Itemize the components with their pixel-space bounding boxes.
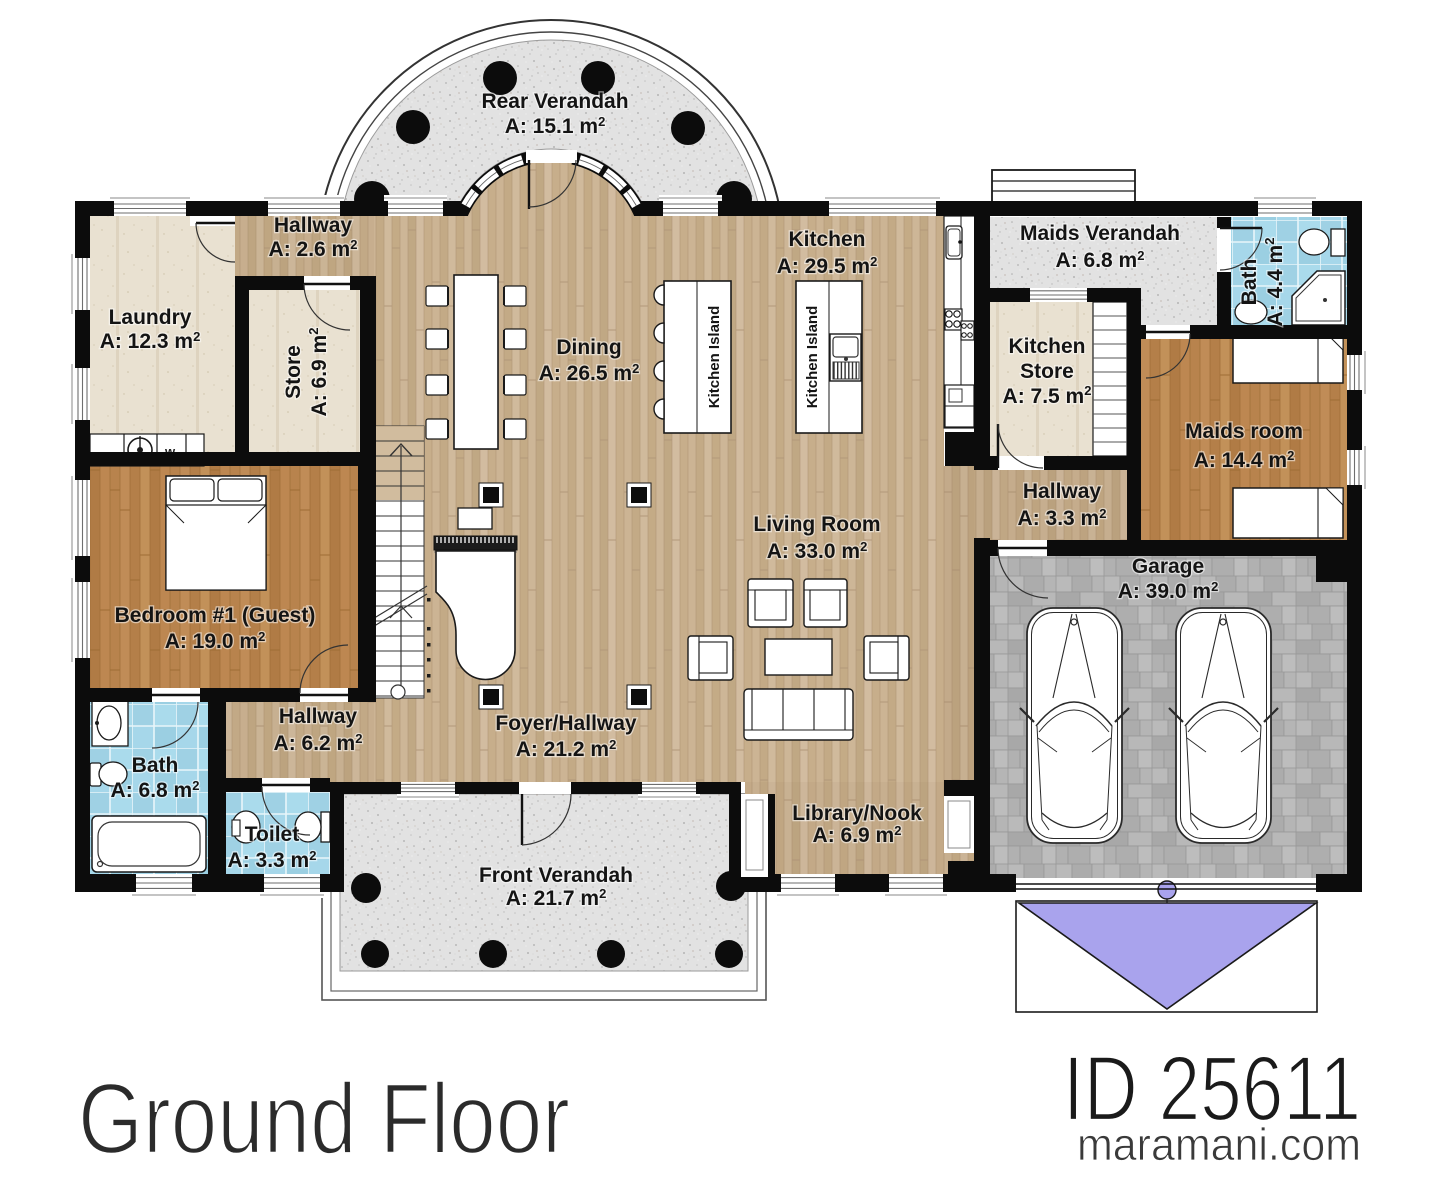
svg-text:Maids room: Maids room: [1185, 420, 1303, 443]
svg-text:A: 29.5 m2: A: 29.5 m2: [777, 254, 878, 278]
svg-text:Toilet: Toilet: [245, 823, 299, 846]
svg-text:A: 21.7 m2: A: 21.7 m2: [506, 886, 607, 910]
svg-text:A: 21.2 m2: A: 21.2 m2: [516, 737, 617, 761]
svg-text:Kitchen Island: Kitchen Island: [706, 306, 723, 409]
svg-text:A: 12.3 m2: A: 12.3 m2: [100, 329, 201, 353]
svg-text:Hallway: Hallway: [279, 705, 358, 728]
svg-text:Hallway: Hallway: [274, 214, 353, 237]
svg-text:A: 7.5 m2: A: 7.5 m2: [1003, 383, 1092, 408]
svg-text:Rear Verandah: Rear Verandah: [481, 90, 628, 113]
svg-text:A: 3.3 m2: A: 3.3 m2: [1018, 506, 1107, 530]
svg-text:maramani.com: maramani.com: [1077, 1119, 1361, 1170]
svg-text:Foyer/Hallway: Foyer/Hallway: [495, 712, 637, 735]
svg-text:Store: Store: [282, 345, 305, 399]
svg-text:A: 2.6 m2: A: 2.6 m2: [269, 237, 358, 261]
svg-text:Garage: Garage: [1132, 555, 1204, 578]
svg-text:A: 6.8 m2: A: 6.8 m2: [111, 778, 200, 802]
svg-text:A: 15.1 m2: A: 15.1 m2: [505, 114, 606, 138]
svg-text:A: 26.5 m2: A: 26.5 m2: [539, 361, 640, 385]
svg-text:Living Room: Living Room: [753, 513, 880, 536]
svg-text:Library/Nook: Library/Nook: [792, 802, 922, 825]
svg-text:Hallway: Hallway: [1023, 480, 1102, 503]
svg-text:Maids Verandah: Maids Verandah: [1020, 222, 1180, 245]
svg-text:Store: Store: [1020, 360, 1074, 383]
svg-text:A: 3.3 m2: A: 3.3 m2: [228, 848, 317, 872]
svg-text:Bedroom #1 (Guest): Bedroom #1 (Guest): [115, 604, 316, 627]
svg-text:A: 6.9 m2: A: 6.9 m2: [306, 328, 331, 417]
svg-text:A: 6.2 m2: A: 6.2 m2: [274, 731, 363, 755]
svg-text:Ground Floor: Ground Floor: [78, 1063, 570, 1175]
svg-text:A: 14.4 m2: A: 14.4 m2: [1194, 448, 1295, 472]
svg-text:Dining: Dining: [556, 336, 621, 359]
svg-text:A: 6.8 m2: A: 6.8 m2: [1056, 248, 1145, 272]
svg-text:A: 6.9 m2: A: 6.9 m2: [813, 823, 902, 847]
svg-text:Kitchen: Kitchen: [788, 228, 865, 251]
svg-text:Bath: Bath: [132, 754, 179, 777]
svg-text:A: 33.0 m2: A: 33.0 m2: [767, 539, 868, 563]
svg-text:Front Verandah: Front Verandah: [479, 864, 633, 887]
svg-text:A: 4.4 m2: A: 4.4 m2: [1262, 238, 1287, 327]
svg-text:A: 19.0 m2: A: 19.0 m2: [165, 629, 266, 653]
svg-text:Kitchen Island: Kitchen Island: [804, 306, 821, 409]
svg-text:Bath: Bath: [1238, 259, 1261, 306]
svg-text:Laundry: Laundry: [109, 306, 192, 329]
svg-text:A: 39.0 m2: A: 39.0 m2: [1118, 579, 1219, 603]
svg-text:Kitchen: Kitchen: [1008, 335, 1085, 358]
